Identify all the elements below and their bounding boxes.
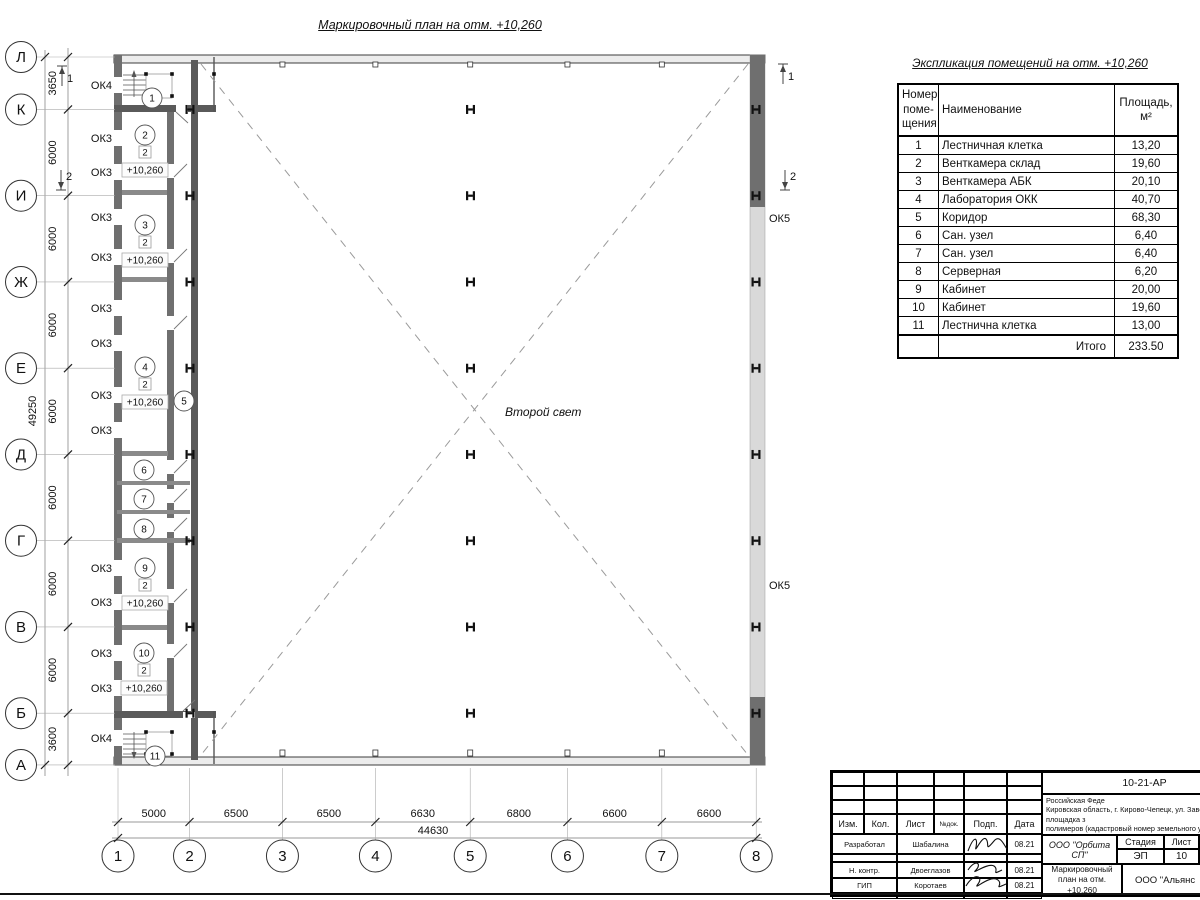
- wall-tick: [373, 62, 378, 67]
- door-opening: [166, 316, 175, 330]
- room-number: 3: [142, 221, 148, 232]
- row-axis-label: Г: [17, 533, 25, 550]
- col-axis-label: 7: [658, 848, 666, 865]
- room-number: 11: [150, 752, 161, 763]
- col-axis-label: 5: [466, 848, 474, 865]
- row-axis-label: Е: [16, 360, 26, 377]
- floor-plan: Второй свет ЛКИЖЕДГВБА12345678 365060006…: [0, 0, 828, 900]
- dimension-label: 3600: [47, 727, 59, 751]
- signature-icon: [962, 858, 1012, 894]
- elevation-label: +10,260: [126, 684, 163, 695]
- window-gap: [113, 130, 122, 146]
- room-number: 10: [138, 649, 150, 660]
- sheet-value: 10: [1164, 849, 1199, 864]
- room-area-cell: 13,00: [1115, 317, 1179, 336]
- room-name-cell: Лестнична клетка: [939, 317, 1115, 336]
- col-axis-label: 2: [185, 848, 193, 865]
- stamp-empty-cell: [897, 854, 964, 862]
- window-label: ОК3: [91, 252, 112, 264]
- room-number: 5: [181, 397, 187, 408]
- finish-type: 2: [141, 666, 146, 677]
- revision-cell: [897, 800, 934, 814]
- warehouse-walls: [114, 55, 765, 765]
- window-label: ОК3: [91, 212, 112, 224]
- col-axis-label: 3: [278, 848, 286, 865]
- room-number: 7: [141, 495, 147, 506]
- window-gap: [113, 209, 122, 225]
- steel-column-icon: [466, 277, 475, 286]
- room-area-cell: 13,20: [1115, 136, 1179, 155]
- revision-cell: [897, 786, 934, 800]
- stamp-header-cell: Дата: [1007, 814, 1042, 834]
- window-label: ОК3: [91, 167, 112, 179]
- wall-tick: [468, 750, 473, 756]
- column-dot: [170, 94, 174, 98]
- window-gap: [113, 77, 122, 93]
- room-area-cell: 19,60: [1115, 155, 1179, 173]
- window-label: ОК3: [91, 338, 112, 350]
- table-row: 11Лестнична клетка13,00: [898, 317, 1178, 336]
- column-dot: [144, 72, 148, 76]
- revision-cell: [964, 786, 1007, 800]
- steel-column-icon: [466, 709, 475, 718]
- steel-column-icon: [466, 450, 475, 459]
- signer-name: Двоеглазов: [897, 862, 964, 878]
- dimension-label: 6800: [507, 808, 531, 820]
- stamp-header-cell: Лист: [897, 814, 934, 834]
- window-gap: [113, 730, 122, 746]
- door-leaf: [174, 518, 187, 531]
- table-row: 5Коридор68,30: [898, 209, 1178, 227]
- signer-role: Н. контр.: [832, 862, 897, 878]
- window-gap: [113, 422, 122, 438]
- row-axis-label: Л: [16, 49, 26, 66]
- dimension-label: 6000: [47, 485, 59, 509]
- steel-column-icon: [186, 364, 195, 373]
- second-light-label: Второй свет: [505, 405, 581, 419]
- door-opening: [166, 644, 175, 658]
- window-label: ОК3: [91, 597, 112, 609]
- table-row: 8Серверная6,20: [898, 263, 1178, 281]
- row-axis-label: И: [16, 188, 27, 205]
- title-block: Изм.Кол.Лист№док.Подп.ДатаРазработалШаба…: [830, 770, 1200, 897]
- stamp-header-cell: №док.: [934, 814, 964, 834]
- row-axis-label: В: [16, 619, 26, 636]
- room-name-cell: Венткамера АБК: [939, 173, 1115, 191]
- table-row: 9Кабинет20,00: [898, 281, 1178, 299]
- room-schedule: Номер поме- щения Наименование Площадь, …: [897, 83, 1179, 359]
- wall-tick: [280, 62, 285, 67]
- section-label: 1: [788, 71, 794, 83]
- steel-column-icon: [466, 191, 475, 200]
- room-number-cell: 6: [898, 227, 939, 245]
- stage-header: Стадия: [1117, 835, 1164, 849]
- total-value: 233.50: [1115, 335, 1179, 358]
- col-number-header: Номер поме- щения: [898, 84, 939, 136]
- dimension-label: 6000: [47, 227, 59, 251]
- window-label: ОК3: [91, 303, 112, 315]
- room-name-cell: Лаборатория ОКК: [939, 191, 1115, 209]
- column-dot: [212, 72, 216, 76]
- section-label: 1: [67, 73, 73, 85]
- section-mark: 1: [57, 66, 73, 86]
- room-area-cell: 20,10: [1115, 173, 1179, 191]
- revision-cell: [832, 786, 864, 800]
- room-markers: 122+10,26032+10,26042+10,260567892+10,26…: [121, 88, 194, 766]
- table-row: 2Венткамера склад19,60: [898, 155, 1178, 173]
- dimension-label: 6630: [411, 808, 435, 820]
- wall-tick: [659, 750, 664, 756]
- section-mark: 2: [780, 170, 796, 190]
- window-gap: [113, 594, 122, 610]
- elevation-label: +10,260: [127, 256, 164, 267]
- finish-type: 2: [142, 581, 147, 592]
- plan-title: Маркировочный план на отм. +10,260: [250, 18, 610, 32]
- section-label: 2: [66, 171, 72, 183]
- table-row: 10Кабинет19,60: [898, 299, 1178, 317]
- room-number: 1: [149, 94, 155, 105]
- revision-cell: [864, 800, 897, 814]
- room-name-cell: Лестничная клетка: [939, 136, 1115, 155]
- door-opening: [166, 489, 175, 503]
- room-number-cell: 8: [898, 263, 939, 281]
- wall-tick: [280, 750, 285, 756]
- revision-cell: [832, 772, 864, 786]
- room-name-cell: Сан. узел: [939, 227, 1115, 245]
- document-number: 10-21-АР: [1042, 772, 1200, 794]
- room-name-cell: Кабинет: [939, 299, 1115, 317]
- signer-name: Шабалина: [897, 834, 964, 854]
- window-gap: [113, 560, 122, 576]
- dimension-label: 3650: [47, 71, 59, 95]
- room-area-cell: 6,40: [1115, 227, 1179, 245]
- dimension-label: 6500: [317, 808, 341, 820]
- row-axis-label: Ж: [14, 274, 28, 291]
- window-gap: [113, 300, 122, 316]
- steel-column-icon: [466, 105, 475, 114]
- room-number-cell: 3: [898, 173, 939, 191]
- door-opening: [166, 460, 175, 474]
- door-leaf: [174, 164, 187, 177]
- room-number-cell: 7: [898, 245, 939, 263]
- col-axis-label: 8: [752, 848, 760, 865]
- dimension-label: 6600: [602, 808, 626, 820]
- window-gap: [113, 335, 122, 351]
- section-mark: 1: [778, 64, 794, 84]
- revision-cell: [897, 772, 934, 786]
- window-label: ОК3: [91, 683, 112, 695]
- finish-type: 2: [142, 380, 147, 391]
- signer-date: 08.21: [1007, 862, 1042, 878]
- window-label: ОК5: [769, 213, 790, 225]
- revision-cell: [1007, 800, 1042, 814]
- row-axis-label: Б: [16, 705, 26, 722]
- column-dot: [170, 72, 174, 76]
- revision-cell: [1007, 772, 1042, 786]
- window-gap: [113, 387, 122, 403]
- room-name-cell: Кабинет: [939, 281, 1115, 299]
- table-row: 3Венткамера АБК20,10: [898, 173, 1178, 191]
- steel-column-icon: [466, 536, 475, 545]
- dimension-label: 6000: [47, 313, 59, 337]
- column-dot: [212, 730, 216, 734]
- room-number-cell: 2: [898, 155, 939, 173]
- steel-column-icon: [466, 622, 475, 631]
- revision-cell: [832, 800, 864, 814]
- room-number-cell: 4: [898, 191, 939, 209]
- room-number-cell: 9: [898, 281, 939, 299]
- room-area-cell: 68,30: [1115, 209, 1179, 227]
- signer-date: 08.21: [1007, 878, 1042, 893]
- door-opening: [166, 518, 175, 532]
- door-leaf: [174, 316, 187, 329]
- door-leaf: [174, 644, 187, 657]
- signature-icon: [964, 833, 1010, 857]
- dimension-label: 6000: [47, 140, 59, 164]
- row-axis-label: Д: [16, 446, 26, 463]
- column-dot: [144, 730, 148, 734]
- steel-column-icon: [186, 450, 195, 459]
- steel-column-icon: [186, 536, 195, 545]
- wall-column-ticks: [280, 62, 664, 756]
- sheet-frame-bottom: [0, 893, 1200, 895]
- door-leaf: [174, 249, 187, 262]
- door-leaf: [174, 460, 187, 473]
- room-number-cell: 5: [898, 209, 939, 227]
- window-gap: [113, 249, 122, 265]
- window-label: ОК3: [91, 648, 112, 660]
- dimension-label: 6500: [224, 808, 248, 820]
- dimension-label: 6000: [47, 572, 59, 596]
- room-number-cell: 1: [898, 136, 939, 155]
- row-axis-label: К: [17, 101, 26, 118]
- column-dot: [170, 730, 174, 734]
- finish-type: 2: [142, 148, 147, 159]
- revision-cell: [864, 772, 897, 786]
- void-diagonals: [201, 64, 748, 755]
- window-label: ОК4: [91, 733, 112, 745]
- revision-cell: [934, 800, 964, 814]
- door-leaf: [174, 489, 187, 502]
- wall-tick: [565, 62, 570, 67]
- room-area-cell: 20,00: [1115, 281, 1179, 299]
- stage-value: ЭП: [1117, 849, 1164, 864]
- schedule-title: Экспликация помещений на отм. +10,260: [897, 56, 1163, 70]
- room-number-cell: 11: [898, 317, 939, 336]
- room-area-cell: 6,40: [1115, 245, 1179, 263]
- dimension-label: 6000: [47, 658, 59, 682]
- signer-date: 08.21: [1007, 834, 1042, 854]
- window-gap: [113, 645, 122, 661]
- room-number: 4: [142, 363, 148, 374]
- room-area-cell: 6,20: [1115, 263, 1179, 281]
- room-area-cell: 19,60: [1115, 299, 1179, 317]
- steel-column-icon: [186, 191, 195, 200]
- overall-dimension-label: 49250: [27, 396, 39, 427]
- stamp-empty-cell: [832, 854, 897, 862]
- col-area-header: Площадь, м²: [1115, 84, 1179, 136]
- col-axis-label: 4: [371, 848, 379, 865]
- room-schedule-table: Номер поме- щения Наименование Площадь, …: [897, 83, 1179, 359]
- wall-tick: [373, 750, 378, 756]
- wall-tick: [468, 62, 473, 67]
- project-description: Здание склада АБК, расположенное по адре…: [1042, 794, 1200, 835]
- dimension-label: 6600: [697, 808, 721, 820]
- room-name-cell: Сан. узел: [939, 245, 1115, 263]
- total-label: Итого: [939, 335, 1115, 358]
- table-row: 1Лестничная клетка13,20: [898, 136, 1178, 155]
- window-label: ОК3: [91, 133, 112, 145]
- row-axis-label: А: [16, 757, 26, 774]
- dimension-label: 6000: [47, 399, 59, 423]
- room-number: 9: [142, 564, 148, 575]
- col-name-header: Наименование: [939, 84, 1115, 136]
- wall-tick: [659, 62, 664, 67]
- room-number: 6: [141, 466, 147, 477]
- signer-role: ГИП: [832, 878, 897, 893]
- window-label: ОК3: [91, 390, 112, 402]
- steel-column-icon: [466, 364, 475, 373]
- table-row: 6Сан. узел6,40: [898, 227, 1178, 245]
- revision-cell: [964, 772, 1007, 786]
- elevation-label: +10,260: [127, 166, 164, 177]
- stamp-header-cell: Кол.: [864, 814, 897, 834]
- room-name-cell: Венткамера склад: [939, 155, 1115, 173]
- signer-role: Разработал: [832, 834, 897, 854]
- section-label: 2: [790, 171, 796, 183]
- room-number-cell: 10: [898, 299, 939, 317]
- table-row: 7Сан. узел6,40: [898, 245, 1178, 263]
- section-mark: 2: [56, 170, 72, 190]
- window-label: ОК5: [769, 580, 790, 592]
- steel-columns: [186, 105, 761, 718]
- finish-type: 2: [142, 238, 147, 249]
- col-axis-label: 1: [114, 848, 122, 865]
- signer-name: Коротаев: [897, 878, 964, 893]
- room-number: 2: [142, 131, 148, 142]
- steel-column-icon: [186, 277, 195, 286]
- column-dot: [170, 752, 174, 756]
- room-number: 8: [141, 525, 147, 536]
- steel-column-icon: [186, 622, 195, 631]
- dimension-label: 5000: [142, 808, 166, 820]
- window-label: ОК4: [91, 80, 112, 92]
- elevation-label: +10,260: [127, 599, 164, 610]
- room-name-cell: Серверная: [939, 263, 1115, 281]
- design-org: ООО "Орбита СП": [1042, 835, 1117, 864]
- revision-cell: [934, 786, 964, 800]
- stamp-empty-cell: [1007, 854, 1042, 862]
- total-row: Итого 233.50: [898, 335, 1178, 358]
- revision-cell: [934, 772, 964, 786]
- elevation-label: +10,260: [127, 398, 164, 409]
- table-row: 4Лаборатория ОКК40,70: [898, 191, 1178, 209]
- room-area-cell: 40,70: [1115, 191, 1179, 209]
- col-axis-label: 6: [563, 848, 571, 865]
- wall-tick: [565, 750, 570, 756]
- window-label: ОК3: [91, 425, 112, 437]
- stamp-header-cell: Изм.: [832, 814, 864, 834]
- revision-cell: [964, 800, 1007, 814]
- sheet-header: Лист: [1164, 835, 1199, 849]
- door-leaf: [174, 589, 187, 602]
- room-name-cell: Коридор: [939, 209, 1115, 227]
- revision-cell: [1007, 786, 1042, 800]
- overall-dimension-label: 44630: [418, 825, 449, 837]
- window-gap: [113, 164, 122, 180]
- window-label: ОК3: [91, 563, 112, 575]
- stamp-header-cell: Подп.: [964, 814, 1007, 834]
- revision-cell: [864, 786, 897, 800]
